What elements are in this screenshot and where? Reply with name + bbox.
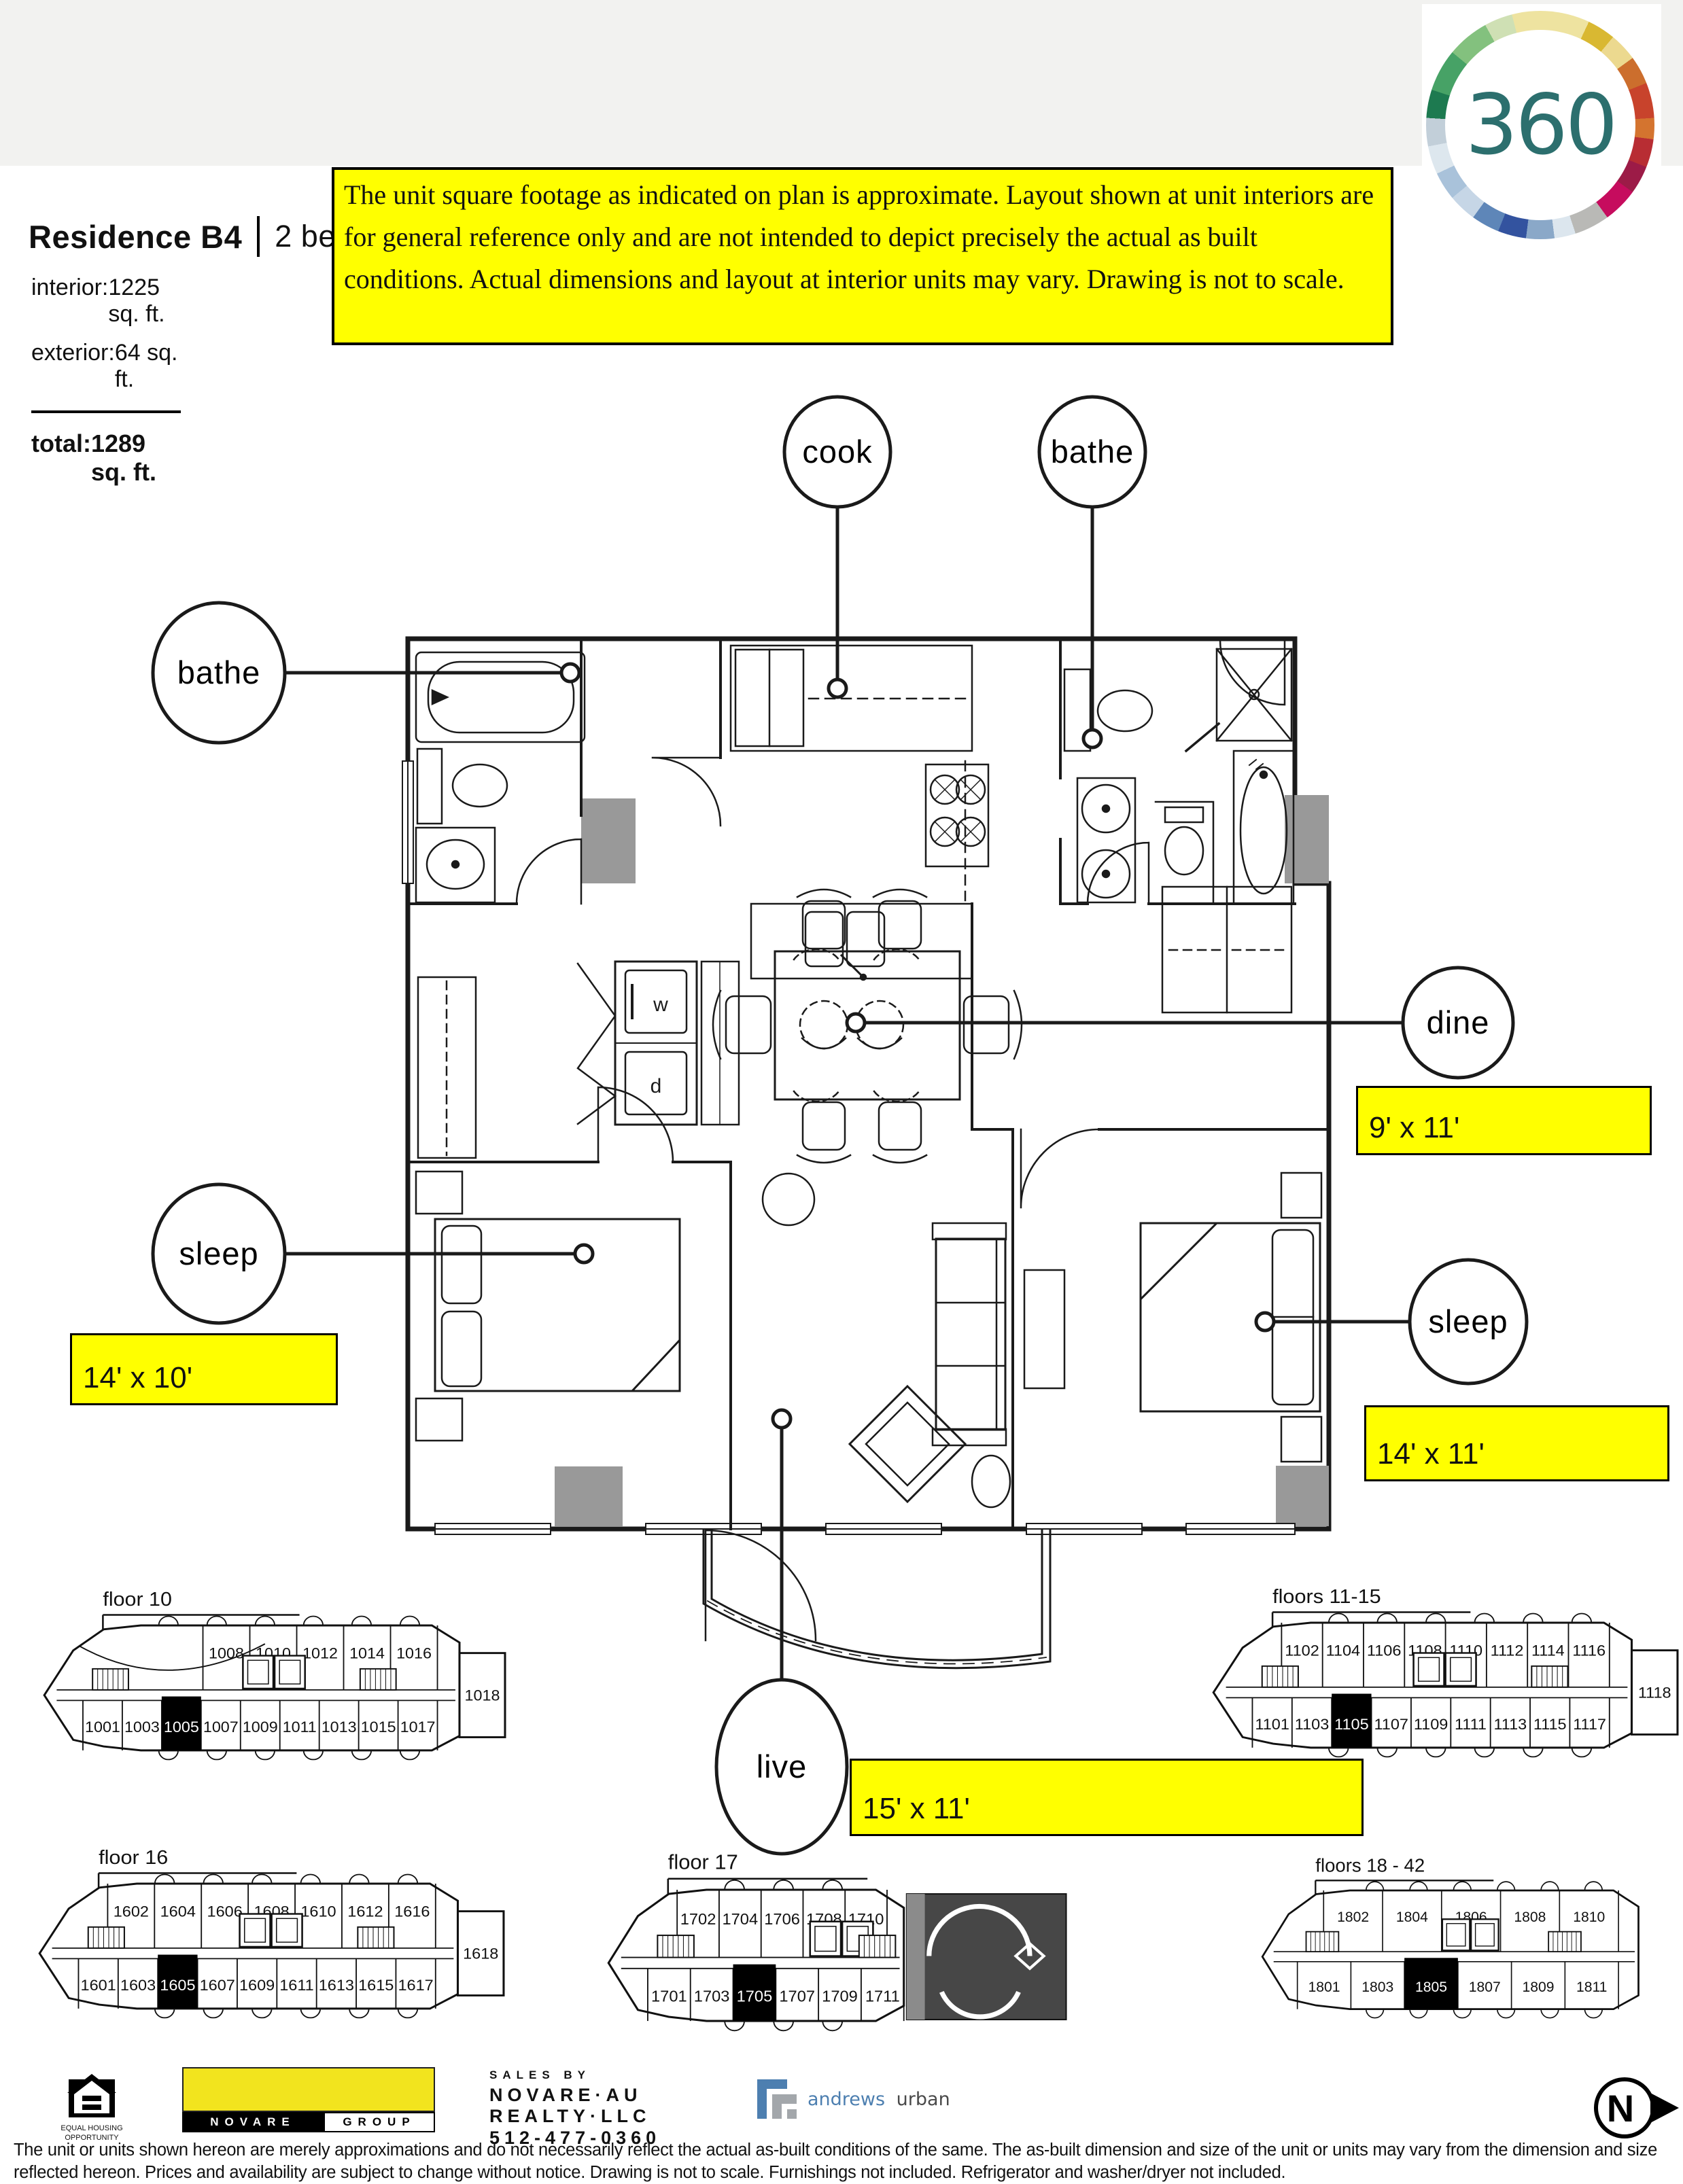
washer-label: w	[653, 993, 668, 1016]
unit-number: 1609	[239, 1976, 275, 1993]
unit-number: 1017	[400, 1718, 436, 1735]
unit-number: 1602	[114, 1903, 149, 1920]
urban-text: urban	[897, 2089, 950, 2110]
unit-number: 1107	[1374, 1715, 1408, 1732]
unit-number: 1015	[361, 1718, 396, 1735]
unit-number: 1103	[1295, 1715, 1330, 1732]
eho-caption-1: EQUAL HOUSING	[58, 2125, 126, 2133]
residence-name: Residence B4	[29, 218, 242, 256]
unit-number: 1704	[722, 1910, 758, 1928]
unit-number: 1011	[283, 1718, 317, 1735]
unit-number: 1605	[160, 1976, 195, 1993]
andrews-text: andrews	[808, 2089, 885, 2110]
dim-dine: 9' x 11'	[1356, 1086, 1652, 1155]
north-arrow-icon	[1650, 2093, 1679, 2123]
unit-number: 1008	[209, 1644, 244, 1661]
unit-number: 1012	[302, 1644, 338, 1661]
floorplate-label: floor 10	[103, 1589, 172, 1610]
unit-number: 1805	[1415, 1979, 1447, 1995]
unit-number: 1702	[680, 1910, 716, 1928]
unit-number: 1707	[779, 1988, 815, 2005]
floorplate-floor16: floor 1616021604160616081610161216161601…	[33, 1843, 505, 2047]
logo-360: 360	[1422, 4, 1661, 241]
stat-value: 1225 sq. ft.	[108, 275, 181, 328]
unit-number: 1013	[322, 1718, 357, 1735]
unit-number: 1706	[764, 1910, 800, 1928]
unit-number: 1811	[1576, 1979, 1607, 1995]
unit-number: 1613	[319, 1976, 354, 1993]
unit-number: 1610	[300, 1903, 336, 1920]
floorplate-label: floor 17	[668, 1850, 738, 1874]
unit-number: 1106	[1367, 1642, 1402, 1659]
unit-number: 1617	[398, 1976, 433, 1993]
dim-sleep-left: 14' x 10'	[70, 1333, 338, 1405]
sales-contact: SALES BY NOVARE·AU REALTY·LLC 512-477-03…	[489, 2068, 661, 2149]
floorplate-label: floor 16	[99, 1847, 168, 1869]
floorplate-floor10: floor 1010081010101210141016100110031005…	[37, 1585, 506, 1789]
legal-disclaimer: The unit or units shown hereon are merel…	[14, 2139, 1669, 2184]
unit-number: 1115	[1533, 1715, 1567, 1732]
unit-number: 1111	[1455, 1715, 1487, 1732]
unit-number: 1604	[160, 1903, 196, 1920]
unit-number: 1809	[1522, 1979, 1554, 1995]
logo-360-ring-icon: 360	[1426, 11, 1654, 239]
andrews-urban-logo: andrews urban	[756, 2078, 950, 2120]
callout-dine: dine	[1427, 1004, 1490, 1040]
unit-number: 1611	[279, 1976, 314, 1993]
novare-yellow-block	[182, 2067, 435, 2112]
approximation-disclaimer-box: The unit square footage as indicated on …	[332, 167, 1393, 345]
unit-number: 1109	[1414, 1715, 1448, 1732]
callout-bathe-left: bathe	[177, 654, 261, 690]
unit-number: 1705	[737, 1988, 773, 2005]
unit-number: 1804	[1396, 1909, 1428, 1925]
unit-number: 1711	[865, 1988, 900, 2005]
north-arrow: N	[1591, 2075, 1683, 2144]
unit-number: 1607	[200, 1976, 235, 1993]
unit-number: 1102	[1285, 1642, 1319, 1659]
sales-realty-name-1: NOVARE·AU	[489, 2085, 661, 2106]
unit-number: 1616	[394, 1903, 430, 1920]
balcony-rail	[704, 1530, 1050, 1668]
unit-number: 1104	[1326, 1642, 1361, 1659]
equal-housing-icon	[65, 2073, 119, 2120]
callout-live: live	[757, 1748, 808, 1784]
unit-number: 1612	[347, 1903, 383, 1920]
callout-sleep-right: sleep	[1428, 1303, 1508, 1339]
unit-number: 1105	[1334, 1715, 1369, 1732]
unit-number: 1101	[1255, 1715, 1289, 1732]
unit-number: 1001	[85, 1718, 120, 1735]
unit-number: 1016	[396, 1644, 432, 1661]
unit-number: 1801	[1308, 1979, 1340, 1995]
unit-number: 1112	[1491, 1642, 1524, 1659]
dim-sleep-right: 14' x 11'	[1364, 1405, 1669, 1481]
unit-number: 1615	[358, 1976, 394, 1993]
unit-number: 1116	[1572, 1642, 1606, 1659]
unit-number: 1118	[1638, 1684, 1671, 1701]
unit-number: 1113	[1493, 1715, 1527, 1732]
sales-realty-name-2: REALTY·LLC	[489, 2106, 661, 2127]
unit-number: 1114	[1531, 1642, 1565, 1659]
unit-number: 1807	[1469, 1979, 1501, 1995]
stat-interior: interior: 1225 sq. ft.	[31, 275, 181, 328]
dryer-label: d	[650, 1075, 662, 1097]
callout-sleep-left: sleep	[179, 1235, 258, 1271]
floorplate-label: floors 11-15	[1272, 1586, 1381, 1608]
unit-number: 1009	[243, 1718, 278, 1735]
floorplate-floor17: floor 1717021704170617081710170117031705…	[602, 1847, 1077, 2061]
stat-label: interior:	[31, 275, 108, 328]
novare-name: NOVARE	[182, 2112, 324, 2132]
unit-number: 1808	[1514, 1909, 1546, 1925]
north-letter: N	[1607, 2087, 1634, 2130]
callout-bathe-top: bathe	[1051, 434, 1134, 470]
unit-number: 1618	[463, 1945, 498, 1962]
novare-group-label: GROUP	[324, 2112, 435, 2132]
unit-number: 1005	[164, 1718, 199, 1735]
novare-group-logo: NOVARE GROUP	[182, 2067, 435, 2132]
unit-number: 1007	[203, 1718, 239, 1735]
equal-housing-logo: EQUAL HOUSING OPPORTUNITY	[58, 2073, 126, 2142]
title-divider	[257, 216, 260, 257]
andrews-urban-icon	[756, 2078, 798, 2120]
unit-number: 1606	[207, 1903, 243, 1920]
unit-number: 1802	[1337, 1909, 1369, 1925]
unit-number: 1703	[694, 1988, 730, 2005]
unit-number: 1117	[1573, 1715, 1606, 1732]
logo-360-text: 360	[1465, 77, 1616, 173]
unit-number: 1603	[120, 1976, 156, 1993]
floorplate-floors18-42: floors 18 - 4218021804180618081810180118…	[1256, 1852, 1681, 2045]
unit-number: 1709	[822, 1988, 858, 2005]
sales-by-label: SALES BY	[489, 2068, 661, 2082]
unit-number: 1701	[651, 1988, 687, 2005]
unit-number: 1003	[124, 1718, 160, 1735]
unit-number: 1601	[81, 1976, 116, 1993]
unit-number: 1803	[1361, 1979, 1393, 1995]
exterior-walls	[408, 639, 1329, 1529]
callout-cook: cook	[802, 434, 872, 470]
unit-number: 1018	[465, 1687, 500, 1704]
unit-number: 1810	[1573, 1909, 1605, 1925]
unit-number: 1014	[349, 1644, 385, 1661]
floorplate-floors11-15: floors 11-151102110411061108111011121114…	[1207, 1582, 1679, 1786]
floorplate-label: floors 18 - 42	[1315, 1854, 1425, 1875]
